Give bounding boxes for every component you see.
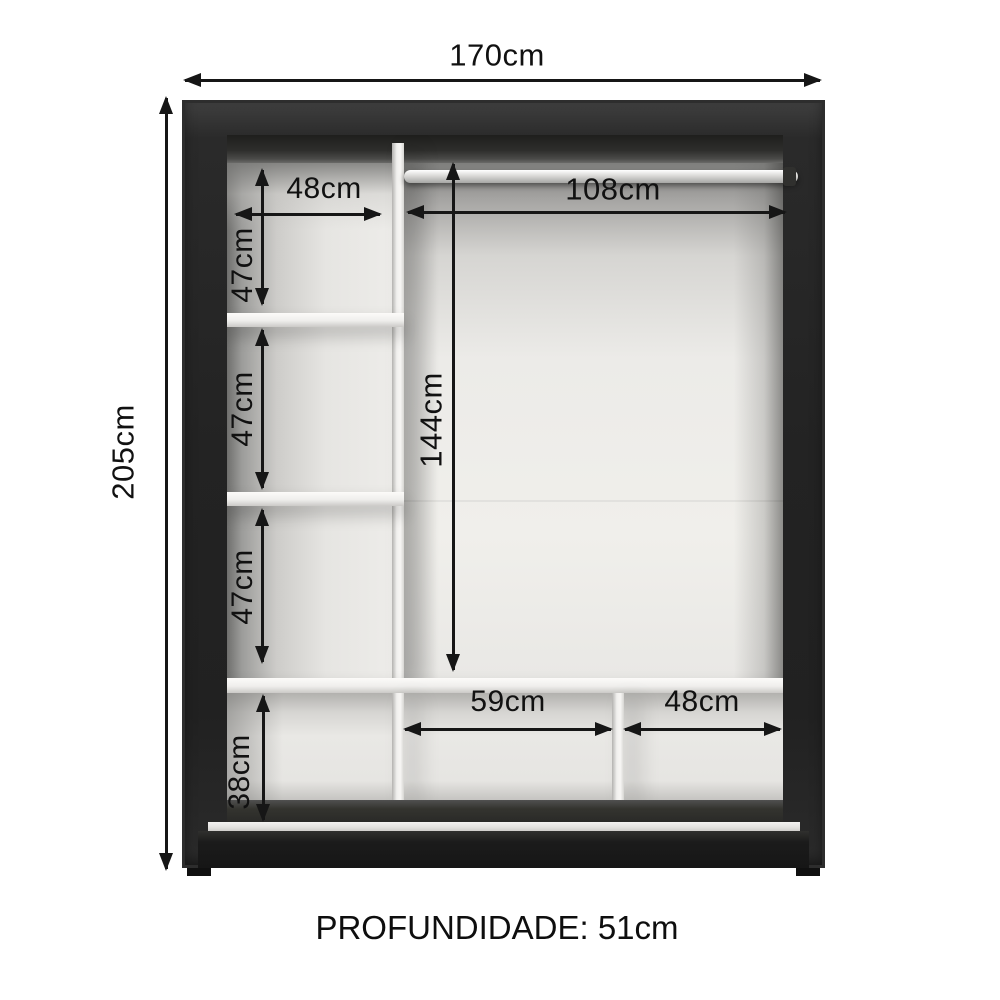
bottom-divider-right [612,693,624,800]
center-divider-panel [392,143,404,678]
wardrobe-interior [227,135,783,822]
total-height-label: 205cm [108,404,139,500]
left-shelf-width-label: 48cm [286,174,361,204]
bottom-left-height-arrow [262,696,265,820]
total-height-arrow [165,98,168,869]
bottom-divider-left [392,693,404,800]
left-comp3-height-label: 47cm [228,549,258,624]
bottom-sliding-rail [208,822,800,831]
bottom-right-width-arrow [625,728,780,731]
left-comp1-height-label: 47cm [228,227,258,302]
base-panel [198,831,809,868]
left-comp1-height-arrow [261,170,264,304]
total-width-arrow [185,79,820,82]
bottom-middle-width-arrow [405,728,611,731]
back-panel-seam [404,500,783,502]
top-inner-panel [227,135,783,163]
left-comp2-height-label: 47cm [228,371,258,446]
hanging-width-label: 108cm [565,174,661,205]
hanging-rod-bracket [783,167,796,186]
hanging-height-label: 144cm [416,372,447,468]
left-comp2-height-arrow [261,330,264,488]
bottom-middle-width-label: 59cm [470,687,545,717]
left-comp3-height-arrow [261,510,264,662]
hanging-height-arrow [452,164,455,670]
interior-floor [227,800,783,822]
hanging-section [404,163,783,678]
left-shelf-width-arrow [236,213,380,216]
wardrobe-dimension-diagram: 170cm 205cm 48cm 47cm 47cm 47cm 38cm 108… [0,0,1000,1000]
shelf-1 [227,313,404,327]
left-foot [187,868,211,876]
total-width-label: 170cm [449,40,545,71]
depth-label: PROFUNDIDADE: 51cm [315,909,678,947]
hanging-width-arrow [408,211,785,214]
bottom-right-width-label: 48cm [664,687,739,717]
bottom-left-height-label: 38cm [225,734,255,809]
shelf-2 [227,492,404,506]
right-foot [796,868,820,876]
